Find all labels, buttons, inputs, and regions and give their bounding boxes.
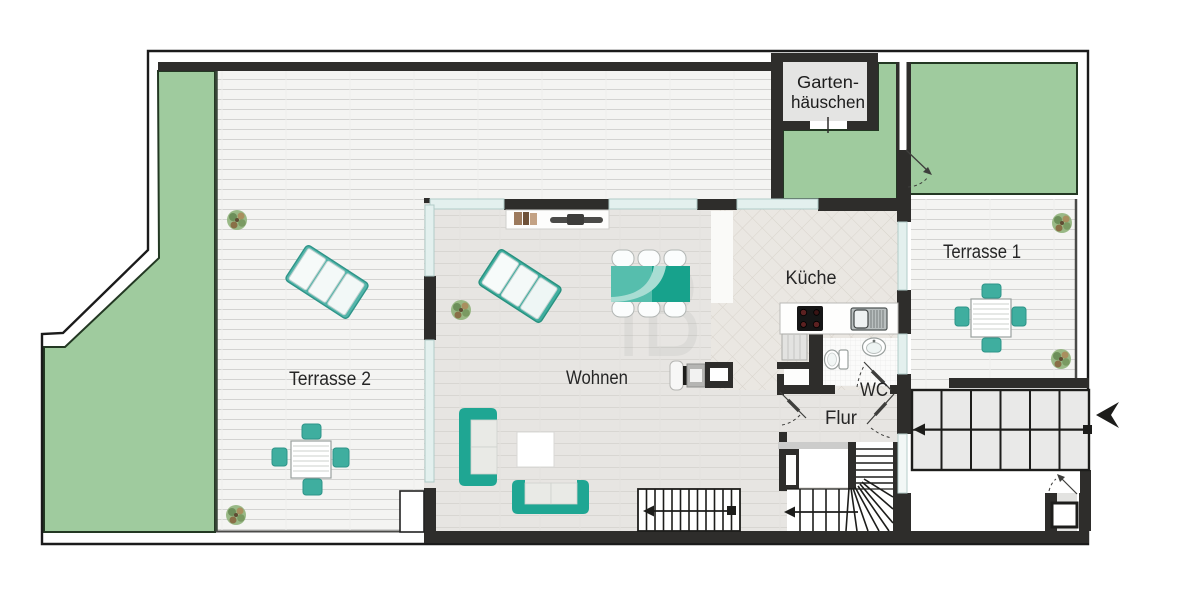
svg-text:Terrasse 2: Terrasse 2 (289, 369, 371, 390)
svg-text:Küche: Küche (786, 268, 837, 289)
svg-text:Flur: Flur (825, 408, 858, 429)
svg-text:Terrasse 1: Terrasse 1 (943, 242, 1021, 263)
svg-text:Wohnen: Wohnen (566, 368, 628, 389)
svg-text:WC: WC (860, 380, 888, 401)
svg-text:häuschen: häuschen (791, 92, 865, 112)
svg-text:Garten-: Garten- (797, 72, 859, 92)
